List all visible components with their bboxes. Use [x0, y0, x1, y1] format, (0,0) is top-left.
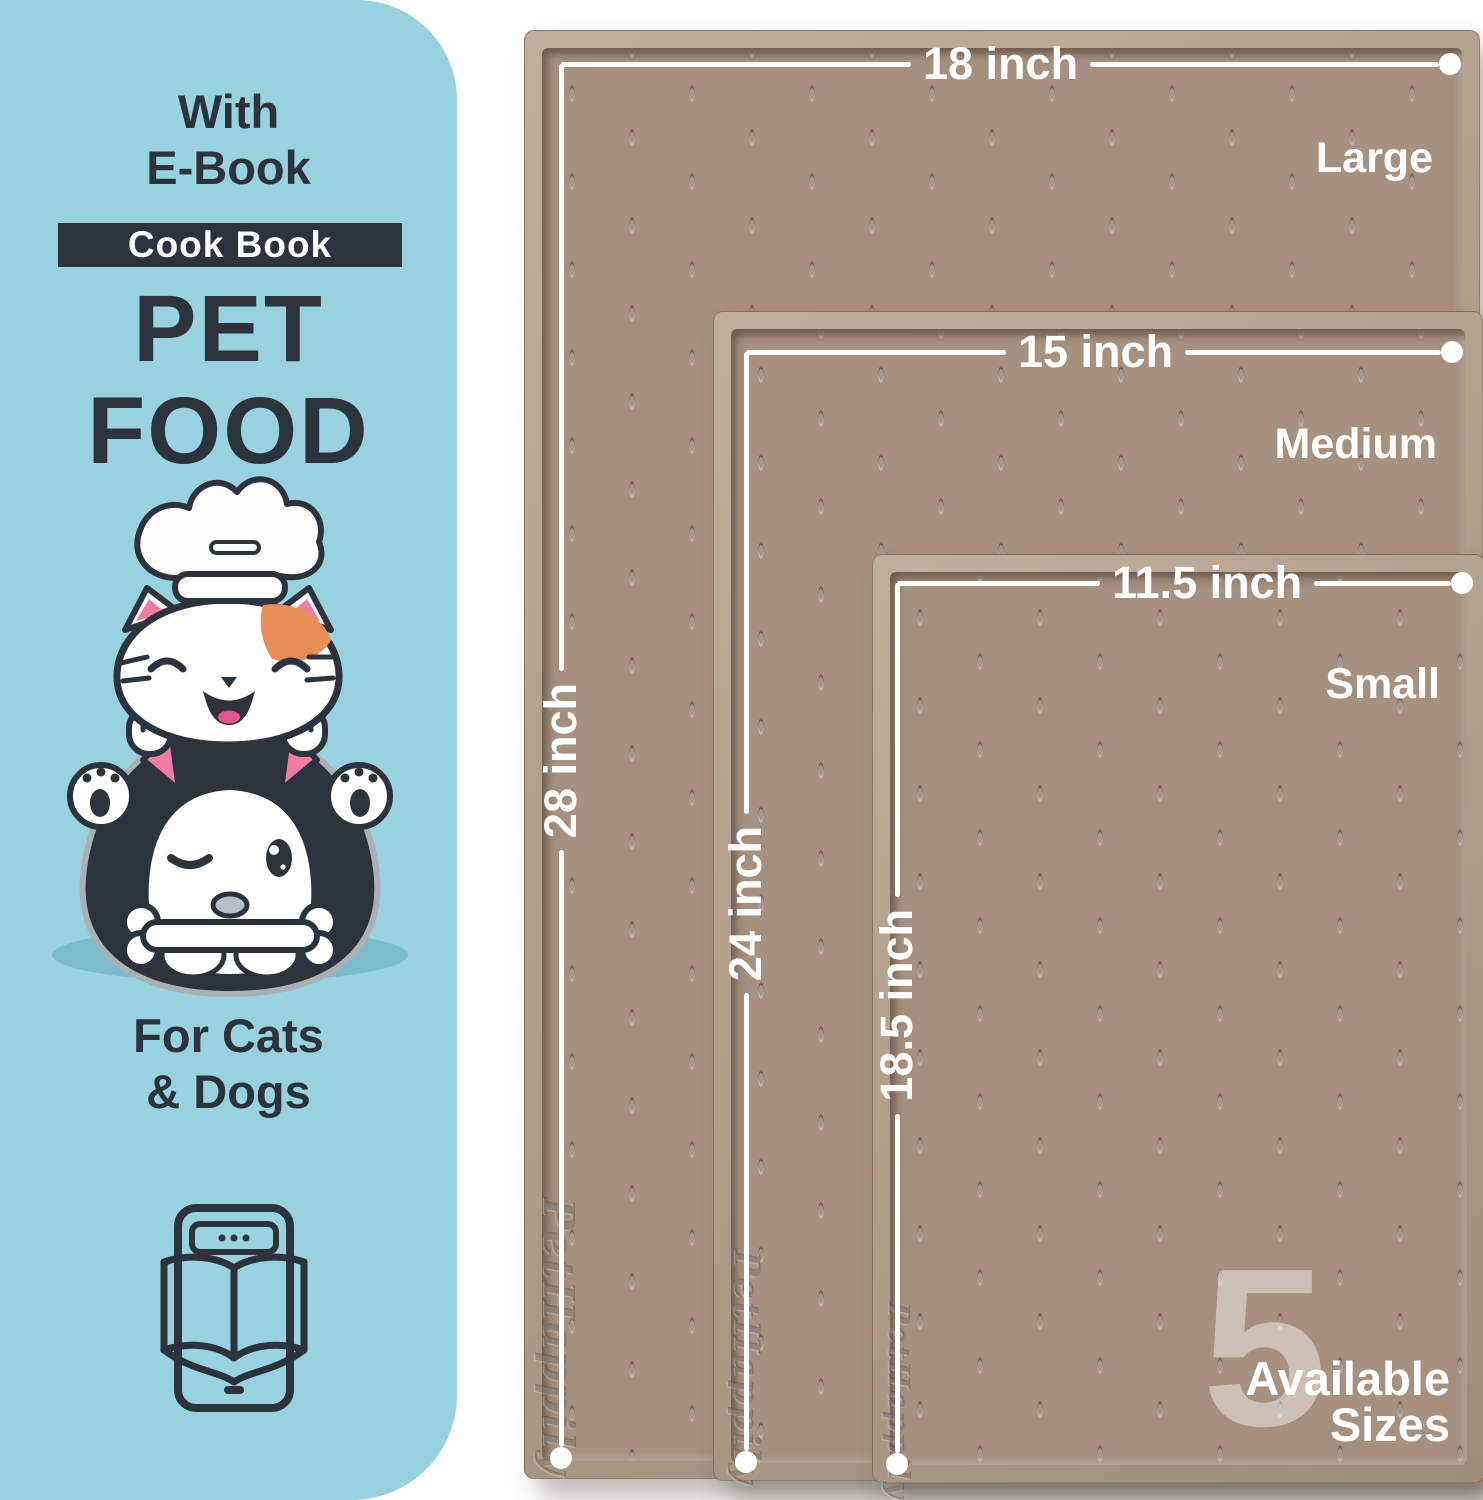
medium-width-label: 15 inch	[1018, 326, 1173, 378]
large-height-label: 28 inch	[535, 683, 587, 838]
pet-food-title: PET FOOD	[0, 278, 457, 482]
ebook-promo-panel: With E-Book Cook Book PET FOOD	[0, 0, 457, 1500]
ebook-tablet-icon	[144, 1202, 324, 1414]
cookbook-badge: Cook Book	[58, 223, 402, 267]
small-width-label: 11.5 inch	[1112, 557, 1302, 609]
cookbook-badge-label: Cook Book	[128, 224, 332, 266]
available-sizes-line1: Available	[1245, 1356, 1450, 1402]
pretitle-line1: With	[0, 84, 457, 140]
dimension-line-segment	[1185, 350, 1441, 355]
large-width-dimension: 18 inch	[561, 53, 1461, 75]
dimension-endpoint-dot	[1441, 341, 1463, 363]
medium-height-label: 24 inch	[720, 826, 772, 981]
small-height-label: 18.5 inch	[871, 909, 923, 1102]
dimension-line-segment	[1090, 62, 1439, 67]
ebook-pretitle: With E-Book	[0, 84, 457, 196]
dimension-endpoint-dot	[550, 1447, 572, 1469]
small-height-dimension: 18.5 inch	[886, 583, 908, 1475]
dimension-line-segment	[1314, 581, 1451, 586]
product-infographic: With E-Book Cook Book PET FOOD	[0, 0, 1483, 1500]
subtitle-line2: & Dogs	[0, 1064, 457, 1120]
available-sizes-line2: Sizes	[1245, 1402, 1450, 1448]
subtitle-line1: For Cats	[0, 1008, 457, 1064]
chef-cat-and-dog-illustration	[25, 458, 445, 1003]
dimension-line-segment	[744, 352, 749, 814]
dimension-endpoint-dot	[735, 1451, 757, 1473]
dimension-line-segment	[746, 350, 1006, 355]
for-cats-and-dogs: For Cats & Dogs	[0, 1008, 457, 1120]
dimension-line-segment	[895, 583, 900, 897]
medium-size-label: Medium	[1275, 420, 1437, 469]
dimension-endpoint-dot	[1439, 53, 1461, 75]
dimension-line-segment	[744, 993, 749, 1451]
dimension-endpoint-dot	[1451, 572, 1473, 594]
dimension-line-segment	[897, 581, 1100, 586]
dimension-line-segment	[895, 1114, 900, 1453]
dimension-line-segment	[559, 850, 564, 1447]
pretitle-line2: E-Book	[0, 140, 457, 196]
large-height-dimension: 28 inch	[550, 64, 572, 1469]
dimension-line-segment	[561, 62, 911, 67]
available-sizes-label: Available Sizes	[1245, 1356, 1450, 1448]
small-width-dimension: 11.5 inch	[897, 572, 1473, 594]
dimension-line-segment	[559, 64, 564, 671]
medium-width-dimension: 15 inch	[746, 341, 1463, 363]
medium-height-dimension: 24 inch	[735, 352, 757, 1473]
title-line1: PET	[0, 278, 457, 380]
small-size-label: Small	[1325, 660, 1440, 709]
large-size-label: Large	[1316, 134, 1433, 183]
dimension-endpoint-dot	[886, 1453, 908, 1475]
large-width-label: 18 inch	[923, 38, 1078, 90]
